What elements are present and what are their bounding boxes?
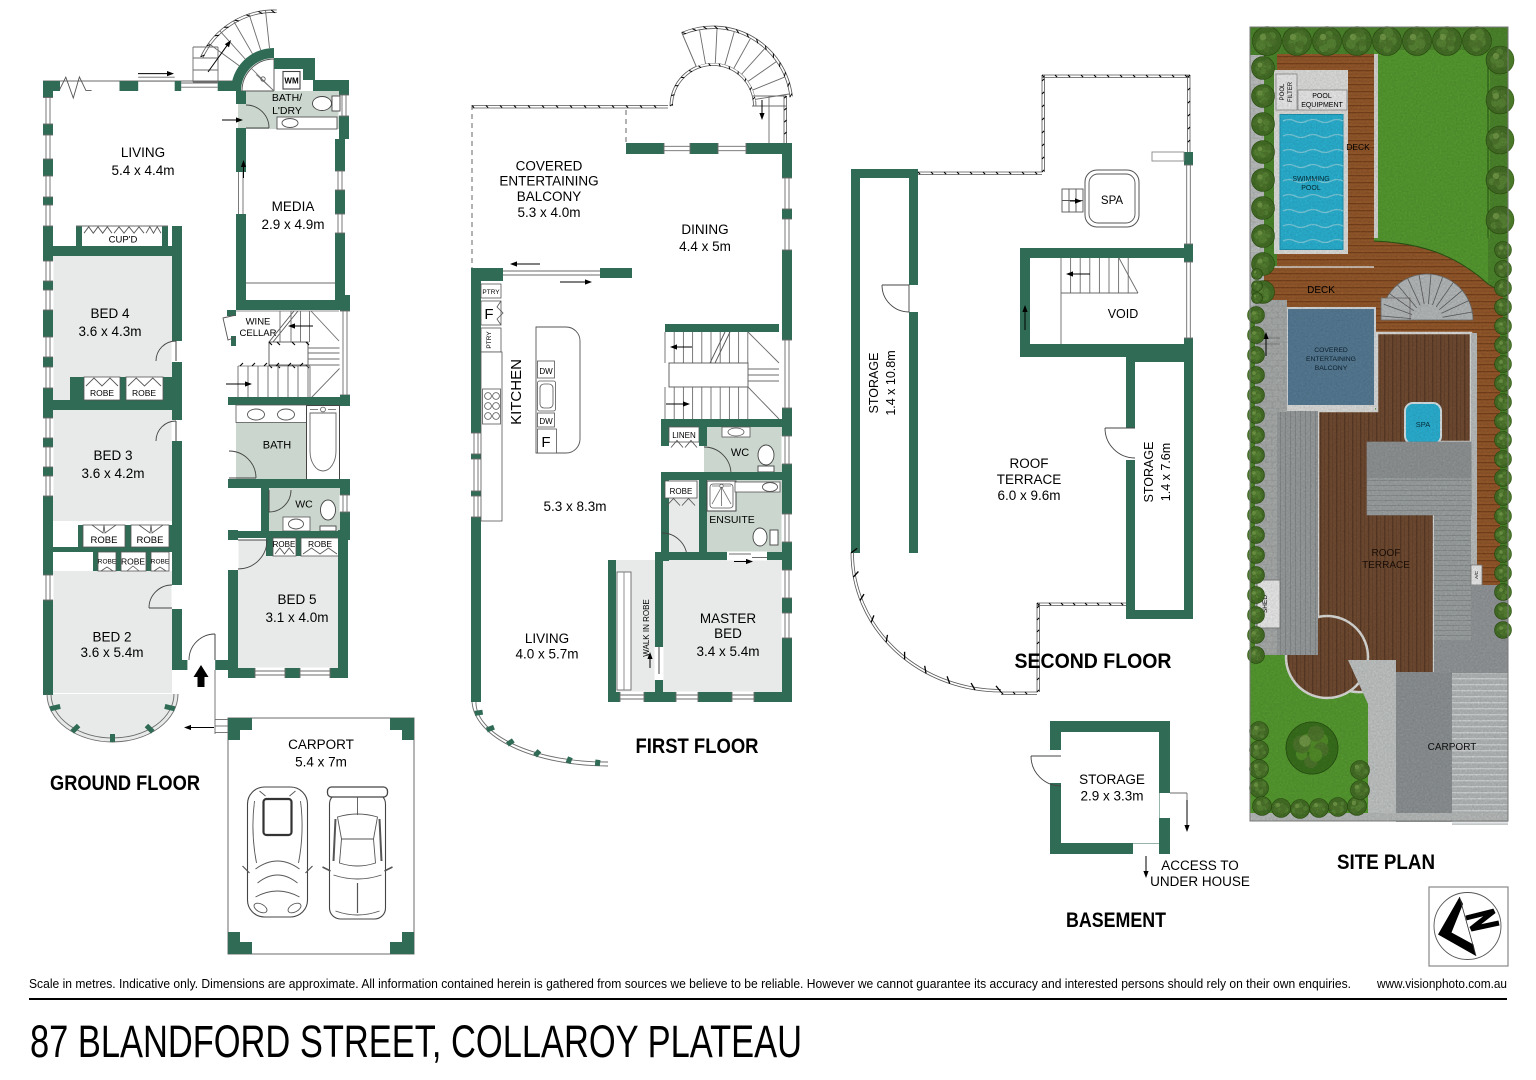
svg-text:ROBE: ROBE — [308, 539, 332, 549]
svg-text:KITCHEN: KITCHEN — [508, 359, 525, 425]
svg-text:3.6 x 4.3m: 3.6 x 4.3m — [78, 324, 141, 339]
svg-text:ROBE: ROBE — [151, 559, 170, 566]
svg-text:CUP'D: CUP'D — [109, 235, 138, 246]
svg-text:MASTER: MASTER — [700, 611, 757, 626]
svg-text:UNDER HOUSE: UNDER HOUSE — [1150, 874, 1250, 889]
svg-text:LIVING: LIVING — [121, 145, 165, 160]
svg-text:ACCESS TO: ACCESS TO — [1161, 858, 1239, 873]
svg-text:ENSUITE: ENSUITE — [709, 514, 755, 526]
svg-text:WC: WC — [731, 447, 749, 459]
svg-text:SECOND FLOOR: SECOND FLOOR — [1015, 649, 1172, 673]
svg-text:ROBE: ROBE — [137, 535, 164, 546]
svg-text:5.4 x 7m: 5.4 x 7m — [295, 755, 347, 770]
svg-text:L'DRY: L'DRY — [272, 105, 302, 117]
svg-text:PTRY: PTRY — [482, 289, 500, 296]
svg-text:FIRST FLOOR: FIRST FLOOR — [636, 734, 759, 758]
svg-text:TERRACE: TERRACE — [997, 472, 1062, 487]
svg-text:www.visionphoto.com.au: www.visionphoto.com.au — [1376, 976, 1507, 991]
svg-text:5.4 x 4.4m: 5.4 x 4.4m — [111, 163, 174, 178]
svg-text:4.0 x 5.7m: 4.0 x 5.7m — [515, 647, 578, 662]
svg-text:MEDIA: MEDIA — [272, 199, 315, 214]
svg-text:87 BLANDFORD STREET, COLLAROY: 87 BLANDFORD STREET, COLLAROY PLATEAU — [30, 1016, 802, 1067]
svg-text:CARPORT: CARPORT — [288, 737, 354, 752]
svg-text:ROBE: ROBE — [121, 557, 145, 567]
svg-text:BASEMENT: BASEMENT — [1066, 908, 1166, 932]
svg-text:CELLAR: CELLAR — [240, 328, 277, 339]
svg-text:Scale in metres. Indicative on: Scale in metres. Indicative only. Dimens… — [29, 976, 1351, 991]
svg-text:3.4 x 5.4m: 3.4 x 5.4m — [696, 644, 759, 659]
svg-text:WM: WM — [284, 77, 299, 86]
svg-text:ENTERTAINING: ENTERTAINING — [499, 174, 598, 189]
svg-text:BATH: BATH — [263, 440, 292, 452]
svg-text:2.9 x 4.9m: 2.9 x 4.9m — [261, 217, 324, 232]
svg-text:LIVING: LIVING — [525, 631, 569, 646]
svg-text:BED 5: BED 5 — [277, 592, 316, 607]
svg-text:WINE: WINE — [246, 317, 271, 328]
svg-text:ROBE: ROBE — [670, 487, 693, 496]
svg-text:4.4 x 5m: 4.4 x 5m — [679, 239, 731, 254]
svg-text:STORAGE: STORAGE — [1079, 772, 1145, 787]
svg-text:3.6 x 5.4m: 3.6 x 5.4m — [80, 645, 143, 660]
svg-text:DW: DW — [539, 367, 553, 376]
svg-text:ROBE: ROBE — [132, 388, 156, 398]
svg-text:5.3 x 8.3m: 5.3 x 8.3m — [543, 499, 606, 514]
svg-text:ROBE: ROBE — [273, 540, 296, 549]
svg-text:BALCONY: BALCONY — [517, 189, 582, 204]
svg-text:BED 4: BED 4 — [90, 306, 130, 321]
svg-text:3.1 x 4.0m: 3.1 x 4.0m — [265, 610, 328, 625]
svg-text:SITE PLAN: SITE PLAN — [1337, 850, 1435, 874]
svg-text:ROBE: ROBE — [90, 388, 114, 398]
svg-text:GROUND FLOOR: GROUND FLOOR — [50, 771, 200, 795]
svg-text:1.4 x 10.8m: 1.4 x 10.8m — [884, 350, 898, 415]
svg-text:ROBE: ROBE — [91, 535, 118, 546]
svg-text:BATH/: BATH/ — [272, 92, 302, 104]
svg-text:ROOF: ROOF — [1010, 456, 1049, 471]
svg-text:LINEN: LINEN — [672, 431, 696, 440]
svg-text:DW: DW — [539, 417, 553, 426]
svg-text:6.0 x 9.6m: 6.0 x 9.6m — [997, 488, 1060, 503]
svg-text:5.3 x 4.0m: 5.3 x 4.0m — [517, 205, 580, 220]
svg-text:ROBE: ROBE — [98, 559, 117, 566]
svg-text:STORAGE: STORAGE — [1142, 442, 1156, 503]
svg-text:WC: WC — [295, 499, 313, 511]
svg-text:PTRY: PTRY — [486, 331, 493, 349]
svg-text:BED 3: BED 3 — [93, 448, 132, 463]
svg-text:BED 2: BED 2 — [92, 630, 131, 645]
svg-text:1.4 x 7.6m: 1.4 x 7.6m — [1159, 443, 1173, 501]
svg-text:F: F — [541, 434, 550, 451]
svg-text:3.6 x 4.2m: 3.6 x 4.2m — [81, 466, 144, 481]
svg-text:SPA: SPA — [1101, 195, 1123, 207]
svg-text:DINING: DINING — [681, 222, 728, 237]
svg-text:BED: BED — [714, 626, 742, 641]
svg-text:WALK IN ROBE: WALK IN ROBE — [642, 599, 651, 657]
svg-text:COVERED: COVERED — [516, 158, 583, 173]
svg-text:STORAGE: STORAGE — [867, 353, 881, 414]
svg-text:VOID: VOID — [1108, 307, 1139, 321]
svg-text:2.9 x 3.3m: 2.9 x 3.3m — [1080, 789, 1143, 804]
svg-text:F: F — [484, 306, 493, 323]
